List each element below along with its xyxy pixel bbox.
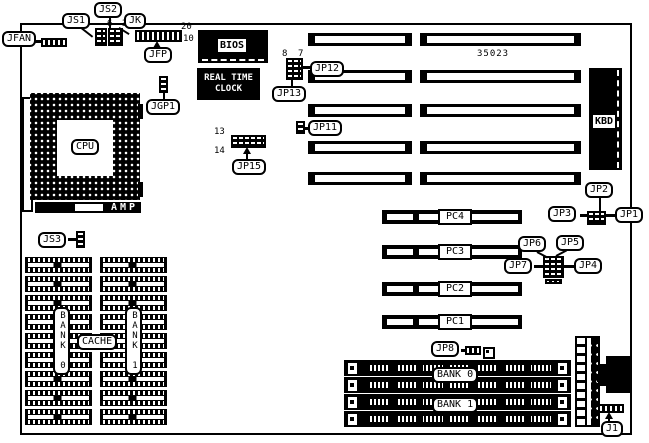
isa-slot-row4-left [308,141,412,154]
isa-slot-row2-right [420,70,581,83]
cache-chip-body [28,301,89,305]
cache-chip [25,257,92,273]
cache-chip-body [103,301,164,305]
cache-chip [25,276,92,292]
cache-chip-body [103,282,164,286]
jfan-label: JFAN [2,31,36,47]
din-connector-tab-bottom [597,377,601,382]
js3-jumper [76,231,85,248]
rtc-chip: REAL TIME CLOCK [197,68,260,100]
js3-lead-line [68,238,77,241]
pci-slot-key2 [419,249,439,255]
pci-slot-key1 [387,319,413,325]
simm-clip-right [557,362,568,375]
pci-slot-key1 [387,249,413,255]
cache-chip [100,257,167,273]
jp7-label: JP7 [504,258,532,274]
cache-chip [25,409,92,425]
cache-bank1-label: BANK 1 [125,307,142,375]
isa-slot-row1-left [308,33,412,46]
jp3-label: JP3 [548,206,576,222]
cache-label: CACHE [77,334,117,350]
jp2-lead-line [599,198,601,212]
jp2-label: JP2 [585,182,613,198]
isa-slot-row3-left [308,104,412,117]
j1-label: J1 [601,421,623,437]
cache-chip-body [103,377,164,381]
din-connector-stem [600,364,607,386]
cache-chip [100,409,167,425]
cache-chip-body [28,396,89,400]
js1-jumper-block [95,28,107,46]
jp8-jumper [465,346,481,355]
jp13-label: JP13 [272,86,306,102]
pci-slot-key2 [419,319,439,325]
jp4-jp7-pin-row [545,279,562,284]
cache-chip-body [103,263,164,267]
jp8-jumper-cap [483,347,495,359]
jp4-label: JP4 [574,258,602,274]
simm-clip-left [347,413,358,426]
pci-slot-key1 [387,214,413,220]
pci-slot-key2 [419,214,439,220]
bios-socket-edge [202,59,264,61]
cpu-label: CPU [71,139,99,155]
cache-chip [100,390,167,406]
bios-chip-label: BIOS [217,38,247,53]
jp5-label: JP5 [556,235,584,251]
simm-clip-right [557,396,568,409]
jgp1-label: JGP1 [146,99,180,115]
isa-slot-row5-right [420,172,581,185]
cache-chip-body [28,263,89,267]
simm-bank0-label: BANK 0 [432,367,478,383]
pci-slot-key2 [419,286,439,292]
simm-clip-right [557,379,568,392]
isa-slot-row5-left [308,172,412,185]
jgp1-connector [159,76,168,93]
cache-chip-body [28,377,89,381]
jk-label: JK [124,13,146,29]
jfp-label: JFP [144,47,172,63]
jp3-lead-line [580,214,588,217]
din-connector-body [606,356,631,393]
isa-slot-row4-right [420,141,581,154]
simm-bank1-label: BANK 1 [432,397,478,413]
kbd-label: KBD [592,114,616,129]
js3-label: JS3 [38,232,66,248]
jp8-lead-line [461,349,466,352]
jp12-jp13-jumper-block [286,58,303,80]
jp6-label: JP6 [518,236,546,252]
js2-label: JS2 [94,2,122,18]
pci-slot-pc2: PC2 [382,282,522,296]
simm-clip-left [347,362,358,375]
simm-clip-left [347,379,358,392]
jp15-pin14: 14 [214,147,225,156]
jp15-pin13: 13 [214,128,225,137]
jfp-pin20: 20 [181,23,192,32]
jp1-jp2-jp3-jumper-block [587,211,606,225]
cpu-socket-brand: AMP [111,202,138,213]
cache-chip-body [103,415,164,419]
pci-slot-pc3: PC3 [382,245,522,259]
cache-bank0-label: BANK 0 [53,307,70,375]
rtc-label-line1: REAL TIME [197,68,260,84]
cache-chip-body [28,415,89,419]
cpu-socket-notch [75,204,103,211]
pci-slot-pc4: PC4 [382,210,522,224]
jp8-label: JP8 [431,341,459,357]
isa-slot-row3-right [420,104,581,117]
cache-chip [100,276,167,292]
cpu-socket-tab-bottom [138,182,143,197]
jfan-lead-line [35,40,43,43]
simm-clip-left [347,396,358,409]
cache-chip-body [28,282,89,286]
jfp-pin10: 10 [183,35,194,44]
isa-slot-row1-right [420,33,581,46]
kbd-connector-edge [617,70,619,168]
part-number: 35023 [477,50,509,59]
jp11-label: JP11 [308,120,342,136]
cache-chip-body [103,396,164,400]
jp12-label: JP12 [310,61,344,77]
pci-slot-label: PC3 [438,244,472,260]
pci-slot-key3 [471,249,518,255]
jp15-label: JP15 [232,159,266,175]
pci-slot-pc1: PC1 [382,315,522,329]
power-connector-pins-left [577,338,587,425]
cache-chip [25,390,92,406]
simm-clip-right [557,413,568,426]
pci-slot-key3 [471,214,518,220]
pci-slot-label: PC4 [438,209,472,225]
din-connector-tab-top [597,366,601,371]
rtc-label-line2: CLOCK [197,84,260,95]
cpu-socket-base: AMP [35,202,141,213]
jp4-jp7-jumper-block [543,256,564,278]
pci-slot-key3 [471,319,518,325]
jp12-pin7: 7 [298,50,303,59]
pci-slot-key1 [387,286,413,292]
jp1-label: JP1 [615,207,643,223]
jp7-lead-line [534,265,544,268]
jp12-pin8: 8 [282,50,287,59]
pci-slot-label: PC1 [438,314,472,330]
motherboard-diagram: JFAN JS1 JS2 6 3 JK 20 10 JFP BIOS REAL … [0,0,649,443]
pci-slot-key3 [471,286,518,292]
cpu-socket-tab-top [138,104,143,119]
pci-slot-label: PC2 [438,281,472,297]
simm-slot-4 [344,411,571,427]
js1-label: JS1 [62,13,90,29]
jfan-connector [41,38,67,47]
